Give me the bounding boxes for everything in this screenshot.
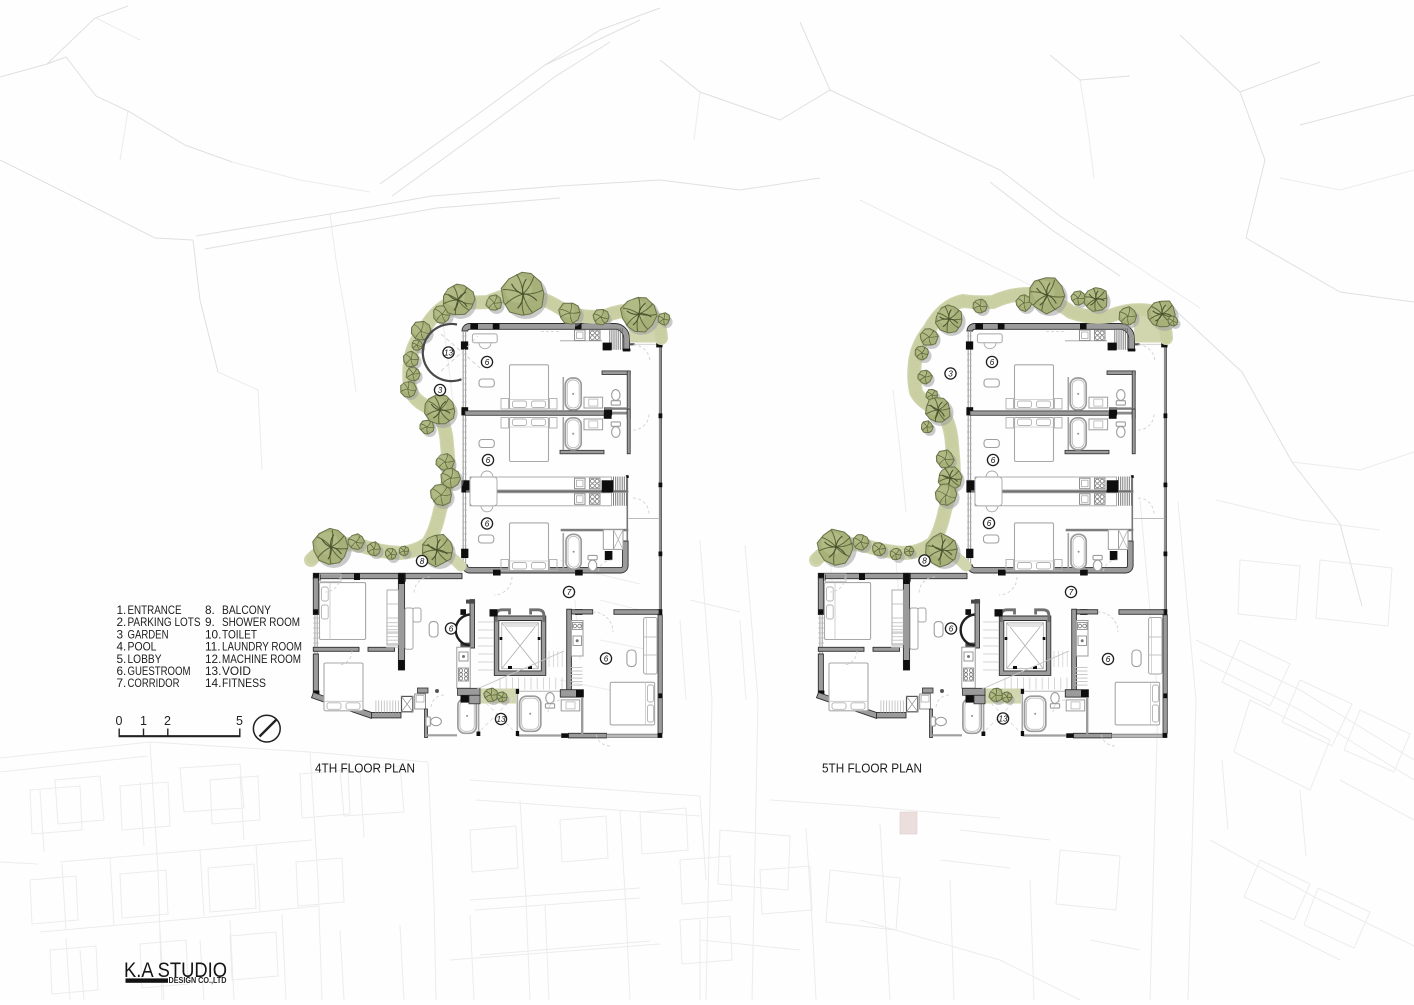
svg-text:6: 6 (604, 655, 609, 664)
svg-text:6: 6 (987, 519, 992, 528)
svg-text:6: 6 (485, 358, 490, 367)
svg-text:DESIGN CO.,LTD: DESIGN CO.,LTD (169, 976, 227, 985)
svg-text:6: 6 (949, 625, 954, 634)
svg-text:6: 6 (449, 625, 454, 634)
svg-text:8: 8 (420, 557, 425, 566)
svg-text:3: 3 (948, 370, 953, 379)
svg-text:7: 7 (1069, 588, 1074, 597)
svg-text:6: 6 (991, 456, 996, 465)
svg-text:6: 6 (485, 520, 490, 529)
svg-text:13: 13 (998, 715, 1008, 724)
svg-text:6: 6 (486, 456, 491, 465)
svg-text:6: 6 (1106, 655, 1111, 664)
svg-text:5: 5 (236, 714, 243, 728)
svg-text:6: 6 (990, 358, 995, 367)
svg-text:5TH FLOOR PLAN: 5TH FLOOR PLAN (822, 761, 922, 776)
svg-text:14.: 14. (205, 676, 221, 690)
svg-text:13: 13 (496, 715, 506, 724)
svg-text:13: 13 (444, 349, 454, 358)
svg-text:0: 0 (116, 714, 123, 728)
svg-text:8: 8 (922, 557, 927, 566)
svg-text:1: 1 (140, 714, 147, 728)
svg-text:2: 2 (164, 714, 171, 728)
svg-text:7: 7 (567, 588, 572, 597)
svg-text:FITNESS: FITNESS (222, 676, 266, 690)
svg-text:3: 3 (438, 386, 443, 395)
svg-text:4TH FLOOR PLAN: 4TH FLOOR PLAN (315, 761, 415, 776)
svg-text:CORRIDOR: CORRIDOR (128, 676, 180, 690)
svg-text:7.: 7. (117, 676, 127, 690)
